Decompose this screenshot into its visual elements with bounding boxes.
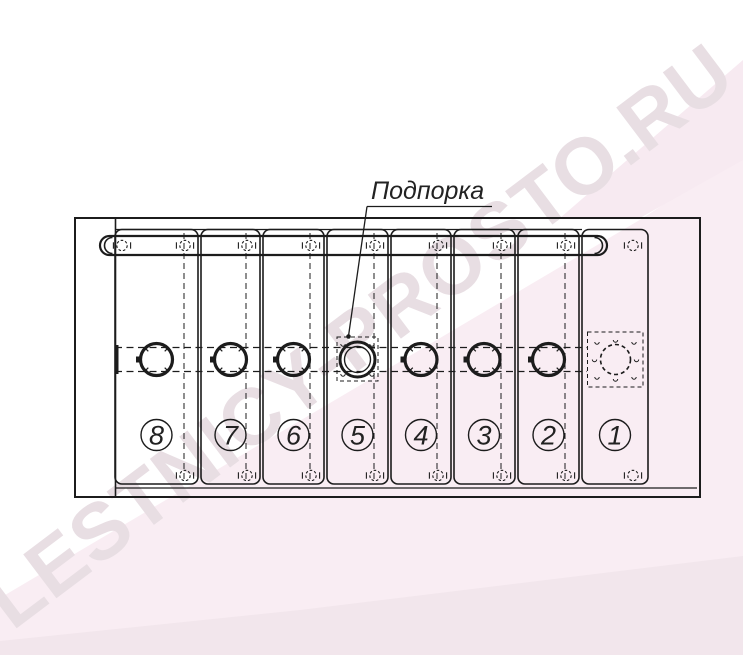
mount-plate-marker bbox=[588, 332, 644, 387]
svg-text:2: 2 bbox=[540, 421, 556, 451]
step-number-5: 5 bbox=[342, 420, 373, 451]
svg-text:7: 7 bbox=[223, 421, 239, 451]
svg-text:3: 3 bbox=[476, 421, 491, 451]
step-number-2: 2 bbox=[533, 420, 564, 451]
staircase-drawing-page: LESTNICY-PROSTO.RU bbox=[0, 0, 743, 655]
svg-text:8: 8 bbox=[149, 421, 164, 451]
step-number-7: 7 bbox=[215, 420, 246, 451]
step-number-badges: 8 7 6 5 4 3 2 bbox=[141, 420, 631, 451]
support-leader-line bbox=[349, 207, 368, 337]
svg-text:4: 4 bbox=[413, 421, 428, 451]
fastener-screws-top bbox=[113, 240, 641, 250]
support-post-marker bbox=[337, 337, 378, 381]
step-number-3: 3 bbox=[469, 420, 500, 451]
svg-text:5: 5 bbox=[350, 421, 366, 451]
staircase-top-view-drawing: 8 7 6 5 4 3 2 bbox=[0, 0, 743, 655]
step-number-1: 1 bbox=[600, 420, 631, 451]
step-number-6: 6 bbox=[278, 420, 309, 451]
tread-panels bbox=[115, 230, 648, 485]
step-number-8: 8 bbox=[141, 420, 172, 451]
svg-text:6: 6 bbox=[286, 421, 302, 451]
support-leader-dot bbox=[346, 334, 351, 339]
support-label: Подпорка bbox=[371, 177, 484, 205]
step-number-4: 4 bbox=[406, 420, 437, 451]
support-callout: Подпорка bbox=[346, 177, 492, 339]
axis-dashed-lines bbox=[115, 345, 587, 374]
svg-text:1: 1 bbox=[607, 421, 622, 451]
